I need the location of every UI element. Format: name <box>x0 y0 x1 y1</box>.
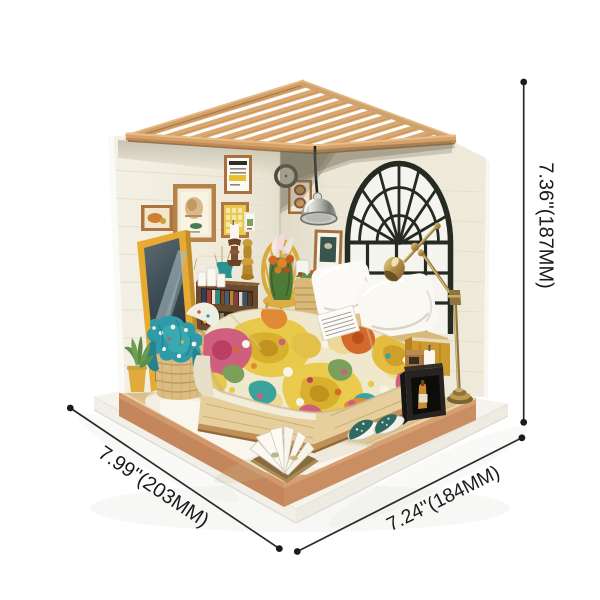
svg-text:7.36''(187MM): 7.36''(187MM) <box>535 162 557 289</box>
